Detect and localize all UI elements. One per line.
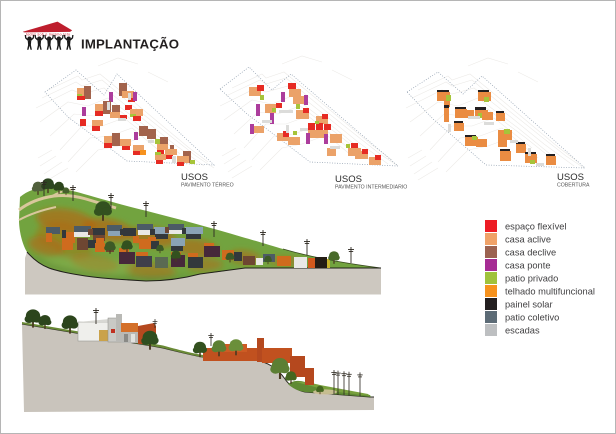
svg-text:espaço flexível: espaço flexível [505, 222, 567, 232]
svg-text:USOS: USOS [181, 172, 208, 183]
svg-text:PAVIMENTO TÉRREO: PAVIMENTO TÉRREO [181, 182, 234, 189]
svg-text:PAVIMENTO INTERMEDIARIO: PAVIMENTO INTERMEDIARIO [335, 185, 407, 191]
svg-text:casa aclive: casa aclive [505, 235, 551, 245]
svg-text:USOS: USOS [335, 174, 362, 185]
svg-text:COBERTURA: COBERTURA [557, 183, 590, 189]
svg-text:USOS: USOS [557, 172, 584, 183]
svg-text:painel solar: painel solar [505, 300, 553, 310]
svg-text:patio privado: patio privado [505, 274, 558, 284]
svg-text:escadas: escadas [505, 326, 540, 336]
svg-text:IMPLANTAÇÃO: IMPLANTAÇÃO [81, 37, 179, 52]
svg-text:telhado multifuncional: telhado multifuncional [505, 287, 595, 297]
svg-text:casa ponte: casa ponte [505, 261, 551, 271]
svg-text:patio coletivo: patio coletivo [505, 313, 559, 323]
svg-text:casa declive: casa declive [505, 248, 556, 258]
